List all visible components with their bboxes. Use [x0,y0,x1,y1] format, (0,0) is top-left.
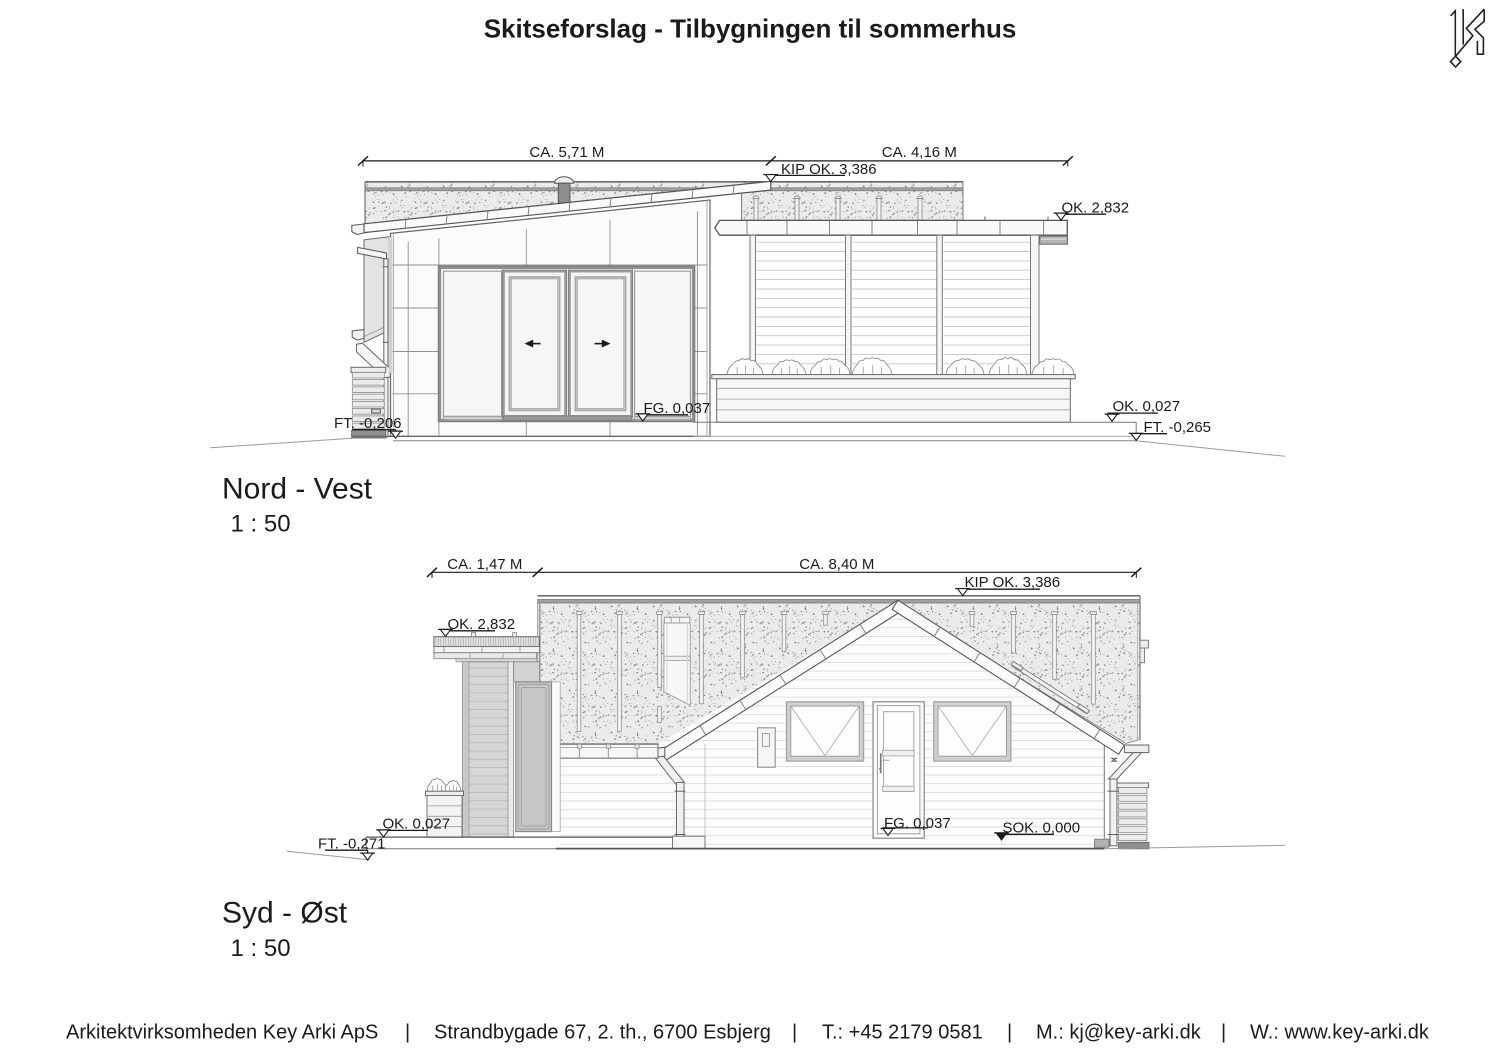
svg-text:KIP OK. 3,386: KIP OK. 3,386 [965,574,1061,591]
svg-text:Syd - Øst: Syd - Øst [222,897,348,930]
svg-text:Skitseforslag - Tilbygningen t: Skitseforslag - Tilbygningen til sommerh… [484,14,1017,44]
svg-text:|: | [405,1022,410,1044]
svg-text:Strandbygade 67, 2. th., 6700: Strandbygade 67, 2. th., 6700 Esbjerg [434,1022,771,1044]
svg-text:|: | [1007,1022,1012,1044]
svg-text:W.: www.key-arki.dk: W.: www.key-arki.dk [1250,1022,1430,1044]
svg-text:CA. 4,16 M: CA. 4,16 M [882,144,957,161]
svg-text:Arkitektvirksomheden Key Arki: Arkitektvirksomheden Key Arki ApS [66,1022,378,1044]
svg-text:|: | [1221,1022,1226,1044]
svg-text:1 : 50: 1 : 50 [231,511,291,538]
svg-text:CA. 1,47 M: CA. 1,47 M [447,556,522,573]
svg-text:1 : 50: 1 : 50 [231,935,291,962]
svg-text:|: | [792,1022,797,1044]
svg-text:FG. 0,037: FG. 0,037 [884,815,951,832]
svg-text:CA. 5,71 M: CA. 5,71 M [529,144,604,161]
svg-text:M.: kj@key-arki.dk: M.: kj@key-arki.dk [1036,1022,1202,1044]
svg-text:T.: +45 2179 0581: T.: +45 2179 0581 [822,1022,983,1044]
svg-text:Nord - Vest: Nord - Vest [222,473,373,506]
svg-text:CA. 8,40 M: CA. 8,40 M [799,556,874,573]
